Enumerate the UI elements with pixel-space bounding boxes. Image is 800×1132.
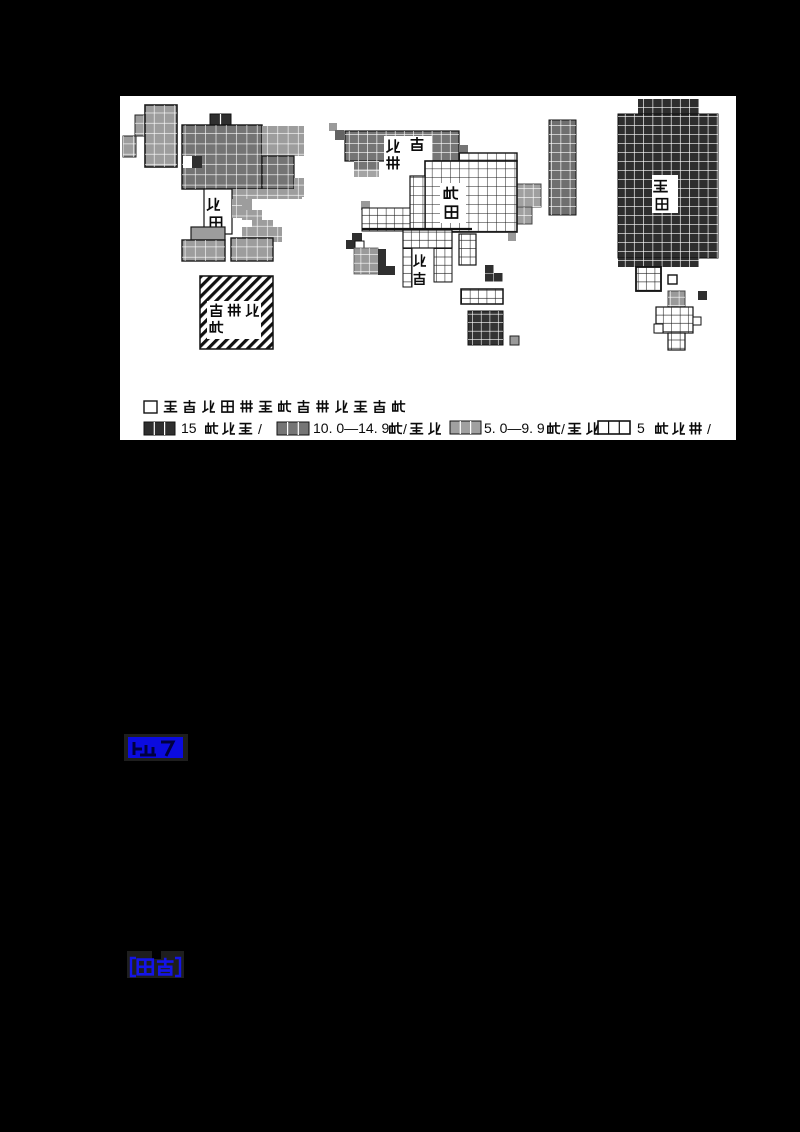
- svg-text:10. 0—14. 9: 10. 0—14. 9: [313, 420, 389, 436]
- svg-text:/: /: [561, 421, 565, 437]
- svg-text:5: 5: [637, 420, 645, 436]
- svg-text:/: /: [403, 421, 407, 437]
- svg-text:15: 15: [181, 420, 197, 436]
- svg-text:/: /: [707, 421, 711, 437]
- svg-text:/: /: [258, 421, 262, 437]
- svg-text:5. 0—9. 9: 5. 0—9. 9: [484, 420, 545, 436]
